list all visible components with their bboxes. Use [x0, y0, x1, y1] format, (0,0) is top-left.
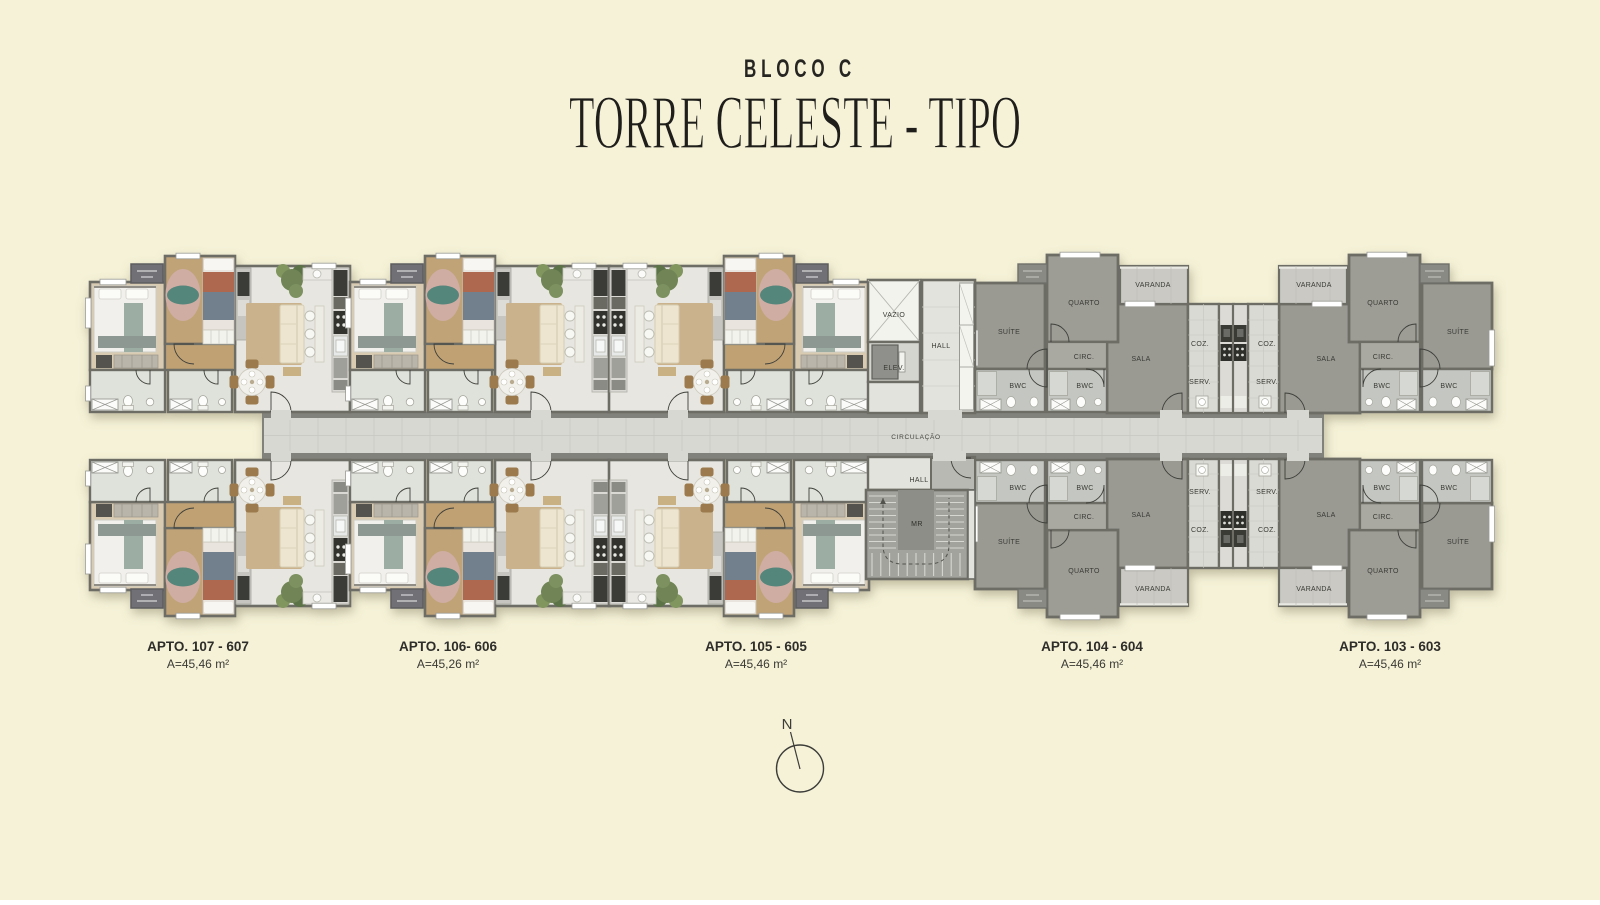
svg-text:SALA: SALA	[1316, 356, 1335, 363]
svg-text:BLOCO C: BLOCO C	[744, 55, 856, 83]
svg-text:SUÍTE: SUÍTE	[998, 537, 1020, 546]
svg-text:SUÍTE: SUÍTE	[1447, 537, 1469, 546]
svg-text:BWC: BWC	[1009, 485, 1026, 492]
svg-text:COZ.: COZ.	[1191, 527, 1209, 534]
svg-text:APTO. 103 - 603: APTO. 103 - 603	[1339, 639, 1441, 654]
svg-text:COZ.: COZ.	[1191, 341, 1209, 348]
svg-text:BWC: BWC	[1440, 383, 1457, 390]
svg-text:COZ.: COZ.	[1258, 527, 1276, 534]
svg-text:CIRCULAÇÃO: CIRCULAÇÃO	[891, 432, 941, 441]
svg-text:QUARTO: QUARTO	[1068, 300, 1100, 307]
svg-text:BWC: BWC	[1009, 383, 1026, 390]
svg-text:SUÍTE: SUÍTE	[1447, 327, 1469, 336]
svg-text:VARANDA: VARANDA	[1135, 282, 1170, 289]
svg-text:VARANDA: VARANDA	[1296, 586, 1331, 593]
svg-text:SERV.: SERV.	[1189, 379, 1211, 386]
svg-text:HALL: HALL	[931, 343, 950, 350]
svg-text:A=45,26 m²: A=45,26 m²	[417, 657, 479, 671]
svg-text:CIRC.: CIRC.	[1373, 514, 1394, 521]
svg-text:BWC: BWC	[1440, 485, 1457, 492]
svg-text:QUARTO: QUARTO	[1367, 568, 1399, 575]
svg-text:SALA: SALA	[1131, 356, 1150, 363]
svg-text:BWC: BWC	[1076, 485, 1093, 492]
svg-text:CIRC.: CIRC.	[1373, 354, 1394, 361]
svg-text:HALL: HALL	[909, 477, 928, 484]
svg-text:N: N	[782, 716, 793, 733]
svg-text:SALA: SALA	[1316, 512, 1335, 519]
svg-text:BWC: BWC	[1373, 383, 1390, 390]
svg-text:SERV.: SERV.	[1256, 489, 1278, 496]
svg-text:A=45,46 m²: A=45,46 m²	[167, 657, 229, 671]
svg-text:CIRC.: CIRC.	[1074, 514, 1095, 521]
svg-text:TORRE CELESTE - TIPO: TORRE CELESTE - TIPO	[569, 81, 1021, 165]
svg-text:APTO. 106- 606: APTO. 106- 606	[399, 639, 498, 654]
svg-text:SALA: SALA	[1131, 512, 1150, 519]
svg-text:QUARTO: QUARTO	[1068, 568, 1100, 575]
svg-text:APTO. 105 - 605: APTO. 105 - 605	[705, 639, 807, 654]
svg-text:APTO. 107 - 607: APTO. 107 - 607	[147, 639, 249, 654]
svg-text:BWC: BWC	[1076, 383, 1093, 390]
svg-text:VARANDA: VARANDA	[1135, 586, 1170, 593]
svg-text:VAZIO: VAZIO	[883, 312, 906, 319]
svg-text:VARANDA: VARANDA	[1296, 282, 1331, 289]
svg-text:CIRC.: CIRC.	[1074, 354, 1095, 361]
svg-text:ELEV.: ELEV.	[883, 365, 904, 372]
svg-text:SUÍTE: SUÍTE	[998, 327, 1020, 336]
svg-text:MR: MR	[911, 521, 923, 528]
svg-text:BWC: BWC	[1373, 485, 1390, 492]
svg-text:A=45,46 m²: A=45,46 m²	[1359, 657, 1421, 671]
svg-text:APTO. 104 - 604: APTO. 104 - 604	[1041, 639, 1143, 654]
svg-text:A=45,46 m²: A=45,46 m²	[725, 657, 787, 671]
svg-text:QUARTO: QUARTO	[1367, 300, 1399, 307]
svg-text:SERV.: SERV.	[1189, 489, 1211, 496]
svg-text:SERV.: SERV.	[1256, 379, 1278, 386]
svg-text:COZ.: COZ.	[1258, 341, 1276, 348]
svg-text:A=45,46 m²: A=45,46 m²	[1061, 657, 1123, 671]
